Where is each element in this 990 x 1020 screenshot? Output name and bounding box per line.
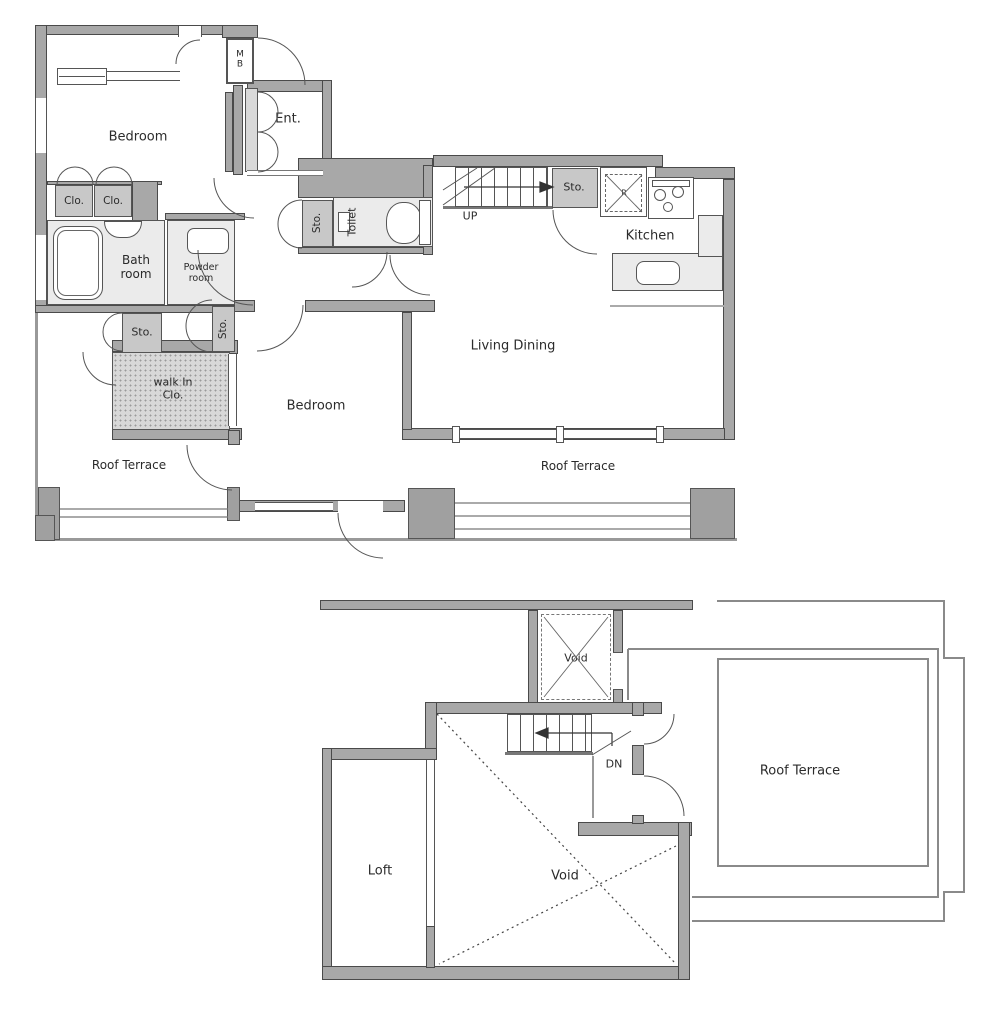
wall <box>233 85 243 175</box>
window <box>57 68 107 85</box>
wall <box>632 745 644 775</box>
kitchen-floor-edge <box>610 305 728 307</box>
room-label-bedroom1: Bedroom <box>109 131 168 146</box>
stairs-up-label: UP <box>463 211 478 224</box>
door-arc <box>176 40 200 64</box>
toilet-bowl <box>386 202 422 244</box>
wall <box>632 702 644 716</box>
room-label-roof-terrace: Roof Terrace <box>760 765 840 780</box>
window <box>255 502 333 511</box>
door-arc <box>257 305 303 351</box>
kitchen-sink <box>636 261 680 285</box>
bathtub <box>53 226 103 300</box>
door-opening <box>338 501 383 512</box>
window-bracket <box>656 426 664 443</box>
window <box>35 235 47 300</box>
wall <box>225 92 233 172</box>
room-label-living-dining: Living Dining <box>471 340 556 355</box>
floor-plan: M B Ent. Bedroom Clo. Clo. Bath room Pow… <box>0 0 990 1020</box>
wall <box>320 600 693 610</box>
wall <box>402 312 412 430</box>
door-arc <box>278 200 302 224</box>
wall <box>322 966 690 980</box>
pillar <box>227 487 240 521</box>
terrace-edge <box>35 538 737 541</box>
room-label-terrace-south: Roof Terrace <box>541 460 615 474</box>
stove <box>648 177 694 219</box>
window <box>613 652 623 690</box>
stair-rail-line <box>592 731 631 755</box>
wall <box>678 822 690 980</box>
wall <box>425 702 662 714</box>
window-bracket <box>556 426 564 443</box>
wall <box>305 300 435 312</box>
wall <box>228 430 240 445</box>
storage-label: Sto. <box>217 319 229 339</box>
door-arc <box>644 714 674 744</box>
door-arc <box>103 313 122 332</box>
pillar <box>408 488 455 539</box>
stairs-up <box>455 167 548 207</box>
kitchen-counter <box>698 215 723 257</box>
window <box>35 98 47 153</box>
terrace-outline <box>692 601 964 921</box>
wall <box>528 610 538 705</box>
door-arc <box>258 152 278 172</box>
door-arc <box>258 92 278 112</box>
overlay-graphics <box>0 0 990 1020</box>
door-arc <box>278 224 302 248</box>
room-label-walk-in-closet: walk In Clo. <box>154 376 193 401</box>
room-label-entrance: Ent. <box>275 113 301 128</box>
wall <box>578 822 692 836</box>
wall <box>723 179 735 440</box>
door-arc <box>187 445 232 490</box>
entrance-step <box>247 170 323 176</box>
room-label-toilet: Toilet <box>347 208 360 237</box>
door-opening <box>178 26 202 37</box>
wall <box>298 158 433 198</box>
shoe-cabinet <box>245 88 258 172</box>
wall <box>426 926 435 968</box>
storage-label: Sto. <box>563 182 584 195</box>
sliding-door <box>228 354 237 426</box>
wall <box>247 80 332 92</box>
door-arc <box>258 38 305 85</box>
stair-edge <box>505 752 593 755</box>
wall <box>322 748 332 980</box>
room-label-void-shaft: Void <box>564 653 587 666</box>
wall <box>298 247 433 254</box>
room-label-kitchen: Kitchen <box>626 230 675 245</box>
room-label-bathroom: Bath room <box>120 254 151 282</box>
toilet-tank <box>419 200 431 245</box>
stairs-down <box>507 714 592 752</box>
door-arc <box>214 178 254 218</box>
window-bracket <box>452 426 460 443</box>
landing-divider <box>592 756 594 818</box>
window <box>107 71 180 81</box>
wall <box>632 815 644 824</box>
void-cross <box>439 846 676 964</box>
door-arc <box>352 252 387 287</box>
wall <box>222 25 258 38</box>
pillar <box>690 488 735 539</box>
wall <box>433 155 663 167</box>
storage-label: Sto. <box>311 213 323 233</box>
storage-label: Sto. <box>131 327 152 340</box>
room-label-terrace-left: Roof Terrace <box>92 459 166 473</box>
door-arc <box>553 210 597 254</box>
closet-label: Clo. <box>103 195 123 207</box>
door-arc <box>338 513 383 558</box>
room-label-void: Void <box>551 870 579 885</box>
room-label-loft: Loft <box>368 865 392 880</box>
wall <box>165 213 245 220</box>
pillar <box>35 515 55 541</box>
stairs-down-label: DN <box>606 759 623 772</box>
terrace-outline <box>718 659 928 866</box>
room-label-bedroom2: Bedroom <box>287 400 346 415</box>
wall <box>132 181 158 223</box>
powder-sink <box>187 228 229 254</box>
wall <box>322 748 437 760</box>
loft-divider <box>426 760 435 930</box>
door-arc <box>258 132 278 152</box>
door-arc <box>390 255 430 295</box>
closet-label: Clo. <box>64 195 84 207</box>
door-arc <box>644 776 684 816</box>
room-label-powder: Powder room <box>184 263 219 285</box>
meter-box-label: M B <box>236 50 244 71</box>
window <box>460 429 556 439</box>
wall <box>35 305 235 313</box>
window <box>564 429 656 439</box>
refrigerator-label: R <box>621 188 627 197</box>
